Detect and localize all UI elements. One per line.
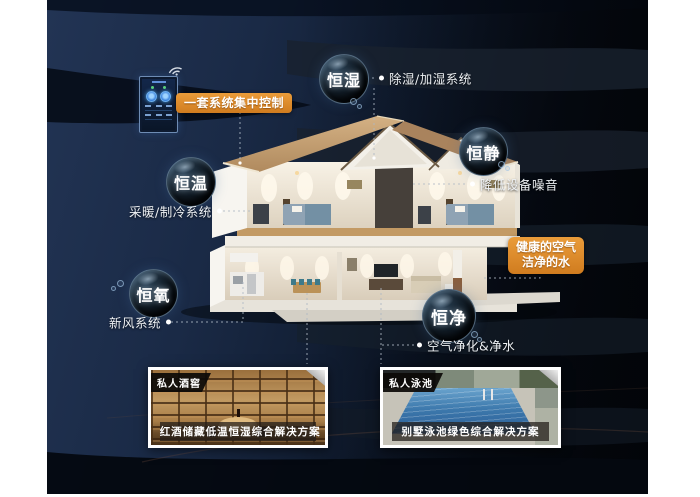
controller-status-dots (142, 86, 175, 89)
mini-bubble-icon (117, 280, 124, 287)
bubble-label: 恒静 (466, 140, 500, 164)
label-text: 新风系统 (109, 313, 161, 332)
wine-card-caption: 红酒储藏低温恒湿综合解决方案 (160, 422, 317, 441)
benefit-line2: 洁净的水 (508, 255, 584, 270)
bubble-constant-oxygen: 恒氧 (129, 269, 178, 318)
label-text: 采暖/制冷系统 (129, 202, 212, 221)
label-text: 降低设备噪音 (480, 175, 558, 194)
bullet-dot-icon (217, 209, 222, 214)
label-dehumidify-system: 除湿/加湿系统 (379, 69, 472, 88)
smart-home-controller (139, 76, 178, 133)
bubble-constant-temperature: 恒温 (166, 157, 216, 207)
controller-readouts (142, 105, 175, 107)
mini-bubble-icon (498, 161, 505, 168)
corner-ribbon-icon (296, 370, 325, 391)
label-text: 除湿/加湿系统 (389, 69, 472, 88)
wine-card-badge: 私人酒窖 (151, 373, 211, 392)
bullet-dot-icon (166, 320, 171, 325)
bubble-label: 恒温 (174, 170, 208, 194)
label-air-water-purify: 空气净化&净水 (417, 336, 515, 355)
mini-bubble-icon (350, 98, 357, 105)
poster-stage: 一套系统集中控制 健康的空气 洁净的水 恒湿 恒静 恒温 恒氧 恒净 除湿/加湿… (47, 0, 648, 494)
pool-card: 私人泳池 别墅泳池绿色综合解决方案 (380, 367, 561, 448)
pool-card-badge: 私人泳池 (383, 373, 443, 392)
bubble-label: 恒湿 (327, 67, 361, 91)
poster-frame: 一套系统集中控制 健康的空气 洁净的水 恒湿 恒静 恒温 恒氧 恒净 除湿/加湿… (0, 0, 700, 497)
bubble-label: 恒氧 (136, 282, 170, 306)
benefit-line1: 健康的空气 (508, 240, 584, 255)
bullet-dot-icon (417, 343, 422, 348)
controller-screen (142, 79, 175, 130)
bubble-label: 恒净 (431, 304, 467, 329)
knob-icon (160, 91, 171, 102)
mini-bubble-icon (111, 286, 116, 291)
label-noise-reduction: 降低设备噪音 (470, 175, 558, 194)
bullet-dot-icon (470, 182, 475, 187)
controller-readouts (142, 114, 175, 116)
controller-divider (145, 110, 172, 111)
mini-bubble-icon (357, 104, 362, 109)
bubble-constant-humidity: 恒湿 (319, 54, 369, 104)
pool-card-caption: 别墅泳池绿色综合解决方案 (392, 422, 550, 441)
mini-bubble-icon (505, 166, 510, 171)
wine-cellar-photo: 私人酒窖 红酒储藏低温恒湿综合解决方案 (151, 370, 325, 445)
pool-photo: 私人泳池 别墅泳池绿色综合解决方案 (383, 370, 558, 445)
pool-ladder-icon (483, 389, 493, 400)
controller-knobs (142, 91, 175, 102)
central-control-label: 一套系统集中控制 (176, 93, 292, 113)
controller-title-bar (152, 81, 166, 83)
benefit-badge: 健康的空气 洁净的水 (508, 237, 584, 274)
bullet-dot-icon (379, 76, 384, 81)
controller-divider (145, 119, 172, 120)
label-text: 空气净化&净水 (427, 336, 515, 355)
bubble-constant-quiet: 恒静 (459, 127, 508, 176)
wine-cellar-card: 私人酒窖 红酒储藏低温恒湿综合解决方案 (148, 367, 328, 448)
knob-icon (146, 91, 157, 102)
label-fresh-air: 新风系统 (109, 313, 171, 332)
label-heating-cooling: 采暖/制冷系统 (129, 202, 222, 221)
